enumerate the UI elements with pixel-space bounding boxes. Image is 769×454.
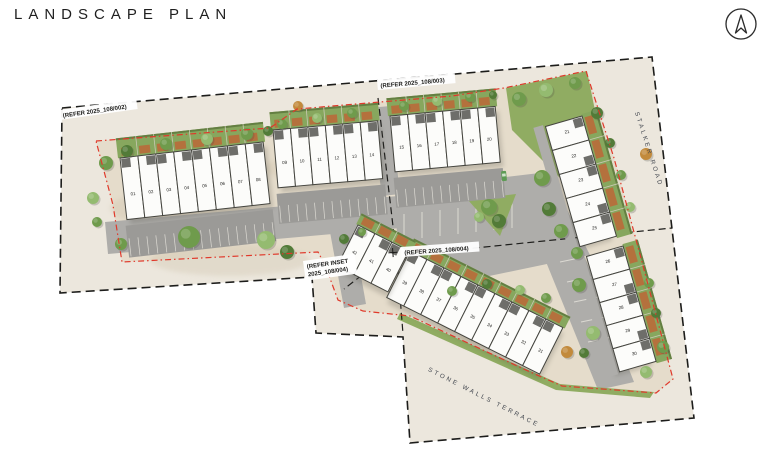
porch [121, 158, 131, 168]
tree-highlight [433, 97, 438, 102]
tree-highlight [294, 102, 299, 107]
tree-highlight [89, 194, 94, 199]
car-roof [502, 173, 506, 176]
tree-highlight [642, 368, 647, 373]
tree-highlight [573, 249, 578, 254]
patio [175, 141, 187, 150]
tree-highlight [541, 85, 547, 91]
porch [368, 122, 378, 132]
porch [391, 116, 401, 126]
porch [193, 150, 203, 160]
landscape-plan-sheet: LANDSCAPE PLAN 0102030405060708091011121… [0, 0, 769, 454]
tree-highlight [282, 247, 288, 253]
tree-highlight [203, 135, 208, 140]
patio [139, 145, 151, 154]
tree-highlight [483, 201, 490, 208]
porch [344, 124, 354, 134]
porch [461, 110, 471, 120]
tree-highlight [123, 147, 128, 152]
tree-highlight [544, 204, 550, 210]
tree-highlight [659, 343, 664, 348]
tree-highlight [359, 229, 363, 233]
porch [228, 146, 238, 156]
porch [146, 155, 156, 165]
site-plan-drawing: 0102030405060708091011121314151617181920… [0, 0, 769, 454]
tree-highlight [556, 226, 562, 232]
patio [361, 111, 372, 120]
tree-highlight [490, 92, 494, 96]
tree-highlight [93, 218, 98, 223]
tree-highlight [340, 235, 345, 240]
tree-highlight [475, 213, 480, 218]
tree-highlight [571, 79, 576, 84]
tree-highlight [542, 294, 547, 299]
porch [426, 113, 436, 123]
porch [415, 114, 425, 124]
tree-highlight [483, 280, 488, 285]
porch [333, 125, 343, 135]
porch [218, 147, 228, 157]
tree-highlight [494, 216, 500, 222]
patio [479, 97, 490, 106]
tree-highlight [348, 109, 353, 114]
tree-highlight [516, 286, 521, 291]
porch [309, 127, 319, 137]
porch [274, 130, 284, 140]
patio [444, 100, 455, 109]
patio [228, 135, 240, 144]
porch [182, 151, 192, 161]
tree-highlight [593, 109, 598, 114]
tree-highlight [448, 287, 453, 292]
porch [298, 128, 308, 138]
match-cross [393, 248, 394, 257]
parked-car [501, 171, 507, 181]
tree-highlight [563, 348, 568, 353]
tree-highlight [278, 120, 283, 125]
tree-highlight [313, 114, 318, 119]
porch [485, 108, 495, 118]
tree-highlight [536, 172, 543, 179]
patio [292, 117, 303, 126]
porch [450, 111, 460, 121]
tree-highlight [588, 328, 594, 334]
tree-highlight [181, 229, 191, 239]
block-plots-09-14: 091011121314 [269, 103, 388, 224]
tree-highlight [514, 94, 520, 100]
tree-highlight [574, 280, 580, 286]
porch [253, 143, 263, 153]
tree-highlight [400, 102, 405, 107]
tree-highlight [580, 349, 585, 354]
tree-highlight [259, 233, 267, 241]
tree-highlight [617, 171, 622, 176]
porch [157, 154, 167, 164]
tree-highlight [162, 140, 167, 145]
patio [326, 114, 337, 123]
